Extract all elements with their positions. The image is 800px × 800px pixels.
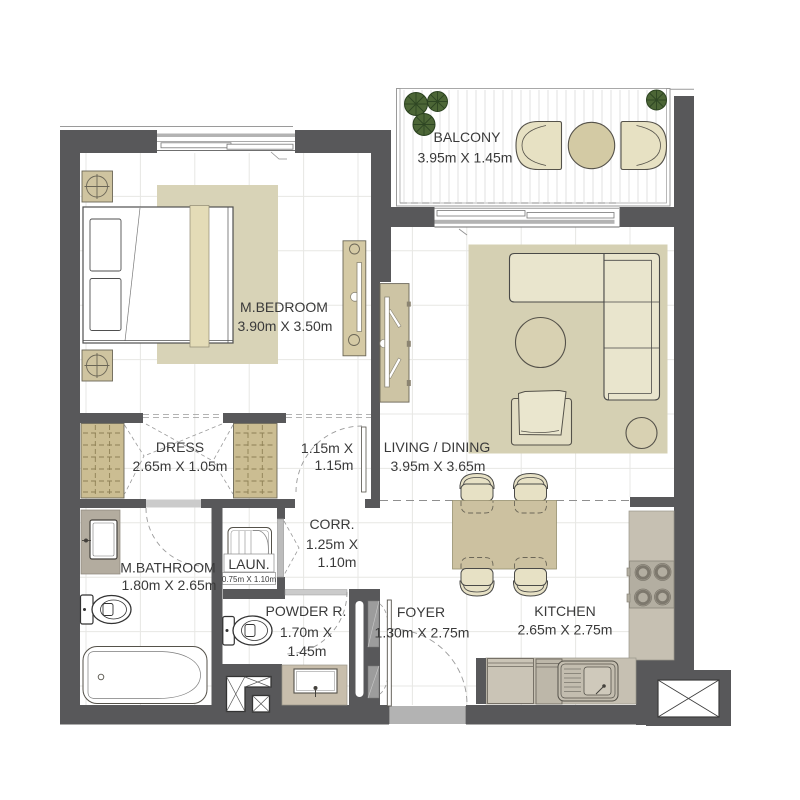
- svg-text:0.75m X 1.10m: 0.75m X 1.10m: [222, 575, 277, 584]
- svg-text:1.25m X: 1.25m X: [306, 536, 359, 552]
- svg-text:1.30m X 2.75m: 1.30m X 2.75m: [375, 625, 470, 641]
- svg-text:KITCHEN: KITCHEN: [534, 603, 595, 619]
- svg-text:CORR.: CORR.: [309, 516, 354, 532]
- svg-text:BALCONY: BALCONY: [434, 129, 502, 145]
- svg-text:1.15m: 1.15m: [315, 457, 354, 473]
- svg-text:1.10m: 1.10m: [318, 554, 357, 570]
- svg-text:M.BATHROOM: M.BATHROOM: [120, 560, 215, 576]
- svg-text:1.70m X: 1.70m X: [280, 624, 333, 640]
- svg-text:FOYER: FOYER: [397, 604, 445, 620]
- svg-text:DRESS: DRESS: [156, 439, 204, 455]
- svg-text:3.95m X 1.45m: 3.95m X 1.45m: [418, 150, 513, 166]
- svg-text:LAUN.: LAUN.: [228, 556, 269, 572]
- svg-text:2.65m X 2.75m: 2.65m X 2.75m: [518, 622, 613, 638]
- svg-text:1.45m: 1.45m: [288, 643, 327, 659]
- svg-text:3.90m X 3.50m: 3.90m X 3.50m: [238, 318, 333, 334]
- svg-text:POWDER R.: POWDER R.: [266, 603, 347, 619]
- svg-text:1.15m X: 1.15m X: [301, 440, 354, 456]
- svg-text:2.65m X 1.05m: 2.65m X 1.05m: [133, 458, 228, 474]
- svg-text:1.80m X 2.65m: 1.80m X 2.65m: [122, 577, 217, 593]
- svg-text:3.95m X 3.65m: 3.95m X 3.65m: [391, 458, 486, 474]
- svg-text:M.BEDROOM: M.BEDROOM: [240, 299, 328, 315]
- svg-text:LIVING / DINING: LIVING / DINING: [384, 439, 491, 455]
